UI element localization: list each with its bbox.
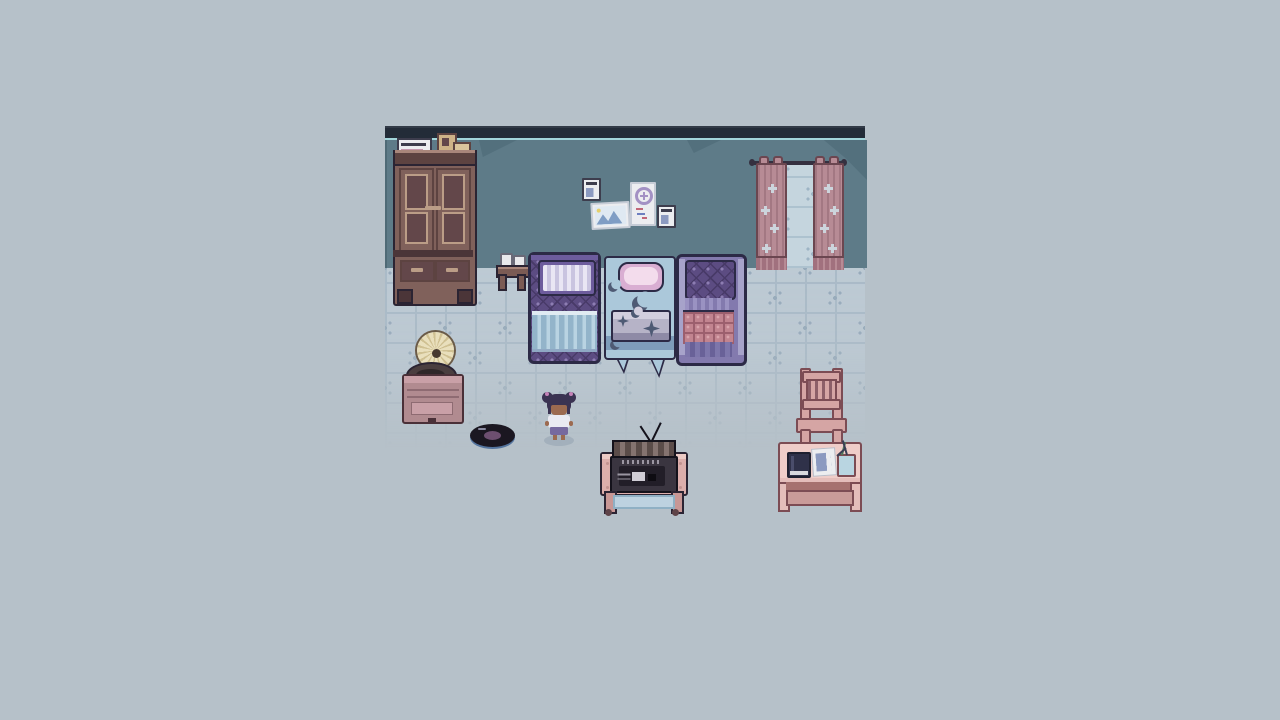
game-viewport[interactable] xyxy=(0,0,1280,720)
curtain-rod-finial xyxy=(749,159,755,166)
mat-pillow xyxy=(618,262,664,292)
window-light xyxy=(783,164,813,268)
wardrobe-drawer xyxy=(435,260,470,282)
wall-papers[interactable] xyxy=(580,176,675,228)
desk-paper xyxy=(811,447,837,477)
player[interactable] xyxy=(541,388,577,448)
desk-rail xyxy=(786,490,854,506)
player-shorts xyxy=(550,427,568,435)
pinned-note xyxy=(582,178,601,201)
desk-group[interactable] xyxy=(776,366,860,512)
curtains[interactable] xyxy=(752,156,844,268)
bed-left[interactable] xyxy=(528,252,601,364)
desk-top xyxy=(778,442,862,486)
bed-left-blanket xyxy=(532,311,597,352)
bed-right[interactable] xyxy=(676,254,747,366)
caster-wheel xyxy=(605,509,612,516)
wardrobe-door-right xyxy=(436,168,471,252)
gramophone[interactable] xyxy=(402,330,460,422)
table-shelf xyxy=(613,495,675,509)
moon-print xyxy=(608,282,618,292)
sleeping-mat[interactable] xyxy=(604,256,672,378)
pencil-cup xyxy=(837,454,856,477)
bed-right-pillow xyxy=(685,260,736,300)
tv-back-panel xyxy=(610,456,678,493)
wardrobe-door-left xyxy=(399,168,434,252)
curtain-panel-left xyxy=(756,163,787,270)
gramophone-cabinet xyxy=(402,374,464,424)
wardrobe-body xyxy=(393,150,477,306)
wall-shadow xyxy=(687,140,721,153)
player-face xyxy=(551,405,567,415)
chair[interactable] xyxy=(796,366,844,444)
wall-shadow xyxy=(479,140,517,157)
pinned-photo xyxy=(590,201,630,230)
wardrobe[interactable] xyxy=(393,130,473,302)
caster-wheel xyxy=(672,509,679,516)
vinyl-record[interactable] xyxy=(470,424,515,447)
mat-base xyxy=(604,256,676,360)
mat-blanket xyxy=(611,310,671,342)
pinned-poster xyxy=(630,182,656,226)
player-shadow xyxy=(544,435,574,446)
wardrobe-handle xyxy=(425,206,441,210)
desk-book xyxy=(787,452,811,478)
tv-table-group[interactable] xyxy=(598,418,688,518)
nightstand[interactable] xyxy=(496,250,528,288)
bed-right-plaid-blanket xyxy=(683,310,734,344)
wardrobe-drawer xyxy=(400,260,435,282)
curtain-panel-right xyxy=(813,163,844,270)
bed-left-pillow xyxy=(538,260,596,296)
pinned-note xyxy=(657,205,676,228)
gramophone-drawer xyxy=(411,402,453,415)
